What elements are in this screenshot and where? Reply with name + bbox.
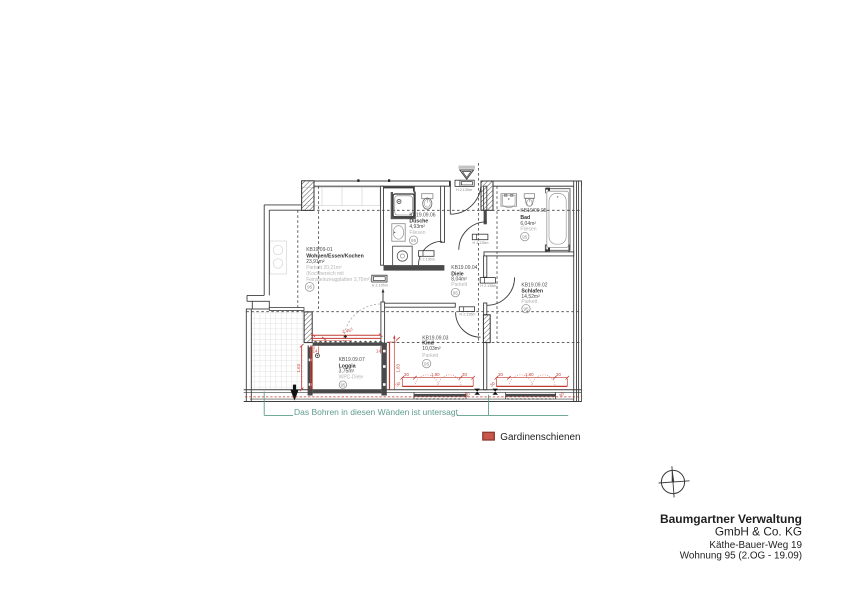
svg-text:KB19.09.07: KB19.09.07 xyxy=(339,357,365,363)
svg-text:30: 30 xyxy=(462,372,467,377)
svg-text:Parkett: Parkett xyxy=(451,282,467,288)
svg-text:Käthe-Bauer-Weg 19: Käthe-Bauer-Weg 19 xyxy=(709,540,802,551)
svg-text:Parkett: Parkett xyxy=(521,299,537,305)
svg-text:30: 30 xyxy=(556,372,561,377)
svg-text:30: 30 xyxy=(498,372,503,377)
svg-text:10,03m²: 10,03m² xyxy=(422,346,441,352)
svg-text:23,91m²: 23,91m² xyxy=(306,259,325,265)
svg-text:H 2.135m: H 2.135m xyxy=(460,313,476,317)
svg-text:30: 30 xyxy=(404,372,409,377)
svg-text:Fliesen: Fliesen xyxy=(409,230,425,236)
svg-text:95: 95 xyxy=(522,234,528,239)
svg-text:KB19.09.04: KB19.09.04 xyxy=(451,265,477,271)
svg-text:Fliesen: Fliesen xyxy=(520,226,536,232)
svg-text:H 2.135m: H 2.135m xyxy=(456,188,472,192)
svg-text:H 2.135m: H 2.135m xyxy=(473,241,489,245)
svg-text:1.63: 1.63 xyxy=(296,363,301,372)
svg-text:KB19/09.05: KB19/09.05 xyxy=(520,208,546,214)
svg-text:H 2.135m: H 2.135m xyxy=(419,257,435,261)
svg-text:95: 95 xyxy=(341,382,346,387)
svg-text:H 2.105m: H 2.105m xyxy=(372,284,388,288)
svg-text:Gardinenschienen: Gardinenschienen xyxy=(500,432,580,443)
svg-text:14: 14 xyxy=(313,349,318,354)
svg-text:95: 95 xyxy=(424,361,430,366)
svg-text:95: 95 xyxy=(307,285,313,290)
svg-text:95: 95 xyxy=(453,290,459,295)
svg-text:KB19/09-01: KB19/09-01 xyxy=(306,247,333,253)
svg-text:95: 95 xyxy=(523,306,529,311)
svg-text:Feinsteinzeugplatten 3,70m²): Feinsteinzeugplatten 3,70m²) xyxy=(306,277,371,283)
svg-text:WPC-Diele: WPC-Diele xyxy=(339,374,364,380)
svg-text:Bad: Bad xyxy=(520,215,530,221)
svg-text:1.83: 1.83 xyxy=(396,363,401,372)
svg-text:GmbH & Co. KG: GmbH & Co. KG xyxy=(715,525,802,539)
svg-text:Parkett: Parkett xyxy=(422,353,438,359)
svg-text:KB19.09.06: KB19.09.06 xyxy=(409,212,435,218)
svg-text:95: 95 xyxy=(411,238,417,243)
svg-text:Das Bohren in diesen Wänden is: Das Bohren in diesen Wänden ist untersag… xyxy=(294,407,459,417)
svg-text:Wohnung 95 (2.OG - 19.09): Wohnung 95 (2.OG - 19.09) xyxy=(680,551,802,562)
svg-text:KB19.09.02: KB19.09.02 xyxy=(521,282,547,288)
svg-text:H 2.135m: H 2.135m xyxy=(480,284,496,288)
